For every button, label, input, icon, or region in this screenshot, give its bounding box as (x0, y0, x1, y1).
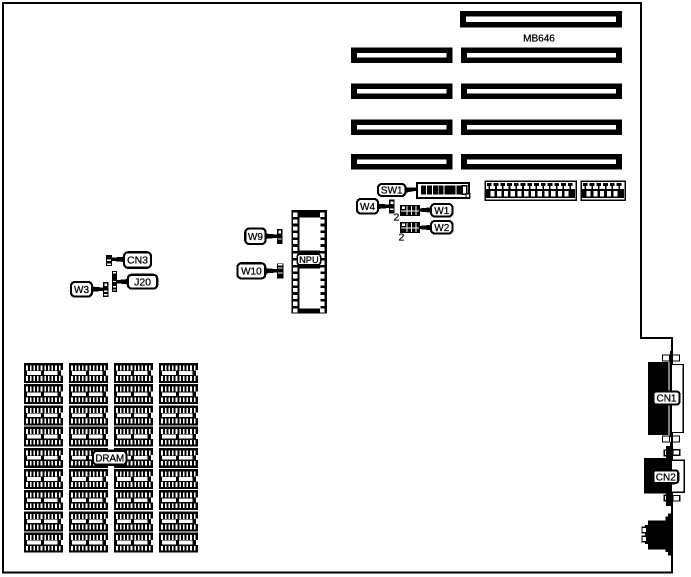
svg-text:NPU: NPU (299, 255, 319, 265)
svg-text:J20: J20 (134, 276, 151, 288)
svg-text:W3: W3 (74, 285, 89, 296)
svg-text:2: 2 (399, 232, 405, 244)
svg-text:W4: W4 (360, 202, 375, 213)
svg-text:CN2: CN2 (656, 472, 676, 483)
svg-text:SW1: SW1 (381, 186, 403, 197)
svg-text:CN3: CN3 (127, 255, 148, 267)
svg-text:DRAM: DRAM (95, 453, 124, 464)
svg-text:W9: W9 (248, 232, 263, 243)
svg-text:W1: W1 (434, 206, 449, 217)
svg-text:CN1: CN1 (656, 394, 676, 405)
svg-text:W2: W2 (434, 223, 449, 234)
svg-text:W10: W10 (241, 266, 262, 277)
svg-text:MB646: MB646 (523, 34, 555, 45)
svg-text:2: 2 (394, 212, 400, 224)
